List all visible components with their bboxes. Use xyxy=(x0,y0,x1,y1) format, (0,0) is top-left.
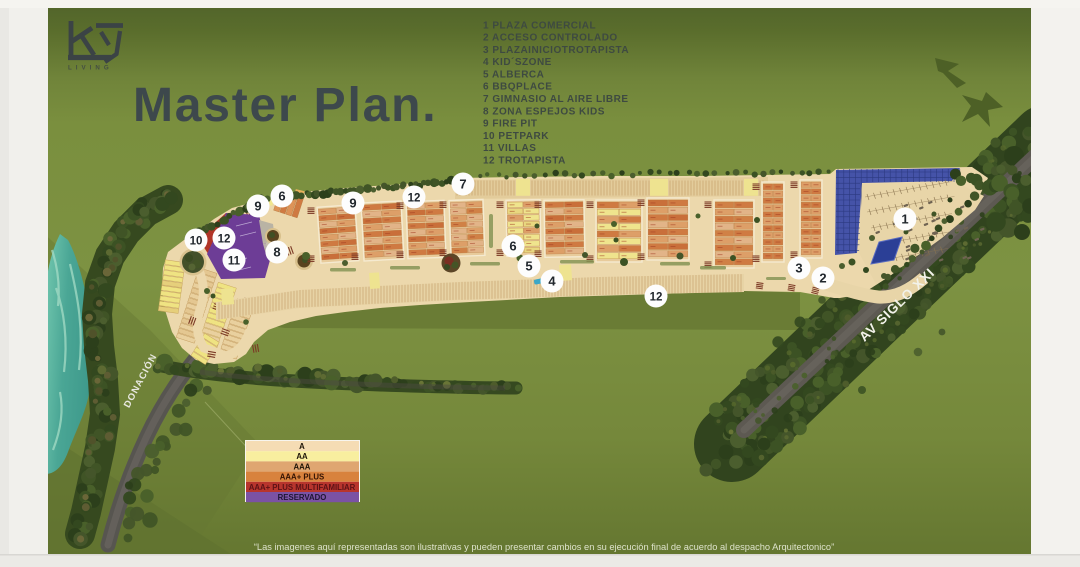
svg-text:Master Plan.: Master Plan. xyxy=(133,79,437,132)
svg-text:2: 2 xyxy=(819,271,826,286)
svg-text:11 VILLAS: 11 VILLAS xyxy=(483,143,536,154)
svg-text:7: 7 xyxy=(459,177,466,192)
svg-text:9: 9 xyxy=(254,199,261,214)
svg-text:“Las imagenes aquí representad: “Las imagenes aquí representadas son ilu… xyxy=(254,542,834,552)
svg-text:RESERVADO: RESERVADO xyxy=(278,493,327,502)
svg-text:LIVING: LIVING xyxy=(68,65,113,72)
svg-text:12: 12 xyxy=(408,193,421,205)
svg-text:6 BBQPLACE: 6 BBQPLACE xyxy=(483,82,552,93)
svg-text:5: 5 xyxy=(525,259,532,274)
svg-text:12: 12 xyxy=(218,234,231,246)
svg-text:AAA+ PLUS MULTIFAMILIAR: AAA+ PLUS MULTIFAMILIAR xyxy=(249,483,356,492)
svg-text:1 PLAZA COMERCIAL: 1 PLAZA COMERCIAL xyxy=(483,20,596,31)
svg-text:3 PLAZAINICIOTROTAPISTA: 3 PLAZAINICIOTROTAPISTA xyxy=(483,45,629,56)
svg-text:8 ZONA ESPEJOS KIDS: 8 ZONA ESPEJOS KIDS xyxy=(483,106,605,117)
svg-text:A: A xyxy=(299,442,305,451)
svg-text:AA: AA xyxy=(296,452,308,461)
svg-text:10: 10 xyxy=(190,236,203,248)
svg-text:4: 4 xyxy=(548,274,556,289)
svg-text:AAA: AAA xyxy=(294,462,311,471)
svg-text:4 KID´SZONE: 4 KID´SZONE xyxy=(483,57,552,68)
svg-text:9: 9 xyxy=(349,196,356,211)
svg-text:7 GIMNASIO AL AIRE LIBRE: 7 GIMNASIO AL AIRE LIBRE xyxy=(483,94,629,105)
svg-text:AAA+ PLUS: AAA+ PLUS xyxy=(280,473,324,482)
svg-text:1: 1 xyxy=(901,212,908,227)
svg-text:9 FIRE PIT: 9 FIRE PIT xyxy=(483,119,537,130)
svg-text:12: 12 xyxy=(650,292,663,304)
svg-text:10 PETPARK: 10 PETPARK xyxy=(483,131,549,142)
svg-text:11: 11 xyxy=(228,256,241,268)
svg-text:5 ALBERCA: 5 ALBERCA xyxy=(483,70,544,81)
svg-text:12 TROTAPISTA: 12 TROTAPISTA xyxy=(483,155,566,166)
svg-text:3: 3 xyxy=(795,261,802,276)
svg-text:8: 8 xyxy=(273,245,280,260)
svg-text:6: 6 xyxy=(509,239,516,254)
svg-text:6: 6 xyxy=(278,189,285,204)
svg-text:2 ACCESO CONTROLADO: 2 ACCESO CONTROLADO xyxy=(483,33,618,44)
